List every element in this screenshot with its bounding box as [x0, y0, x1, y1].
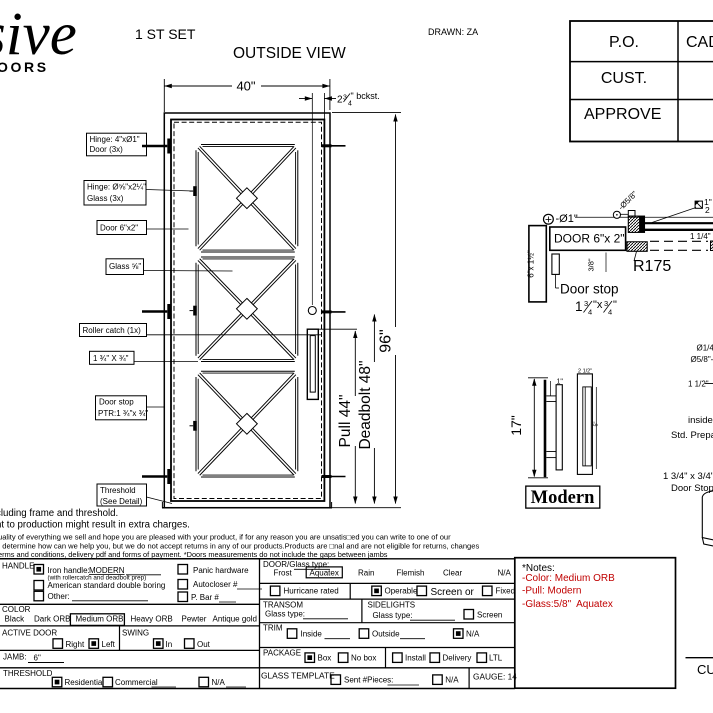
- svg-text:6"x 1½": 6"x 1½": [527, 250, 536, 278]
- svg-text:Hurricane rated: Hurricane rated: [284, 587, 339, 596]
- svg-text:CUST.: CUST.: [601, 70, 647, 87]
- svg-text:1: 1: [575, 299, 583, 314]
- svg-text:4: 4: [348, 101, 352, 108]
- svg-text:Inside: Inside: [301, 630, 323, 639]
- svg-text:Door stop: Door stop: [560, 282, 619, 297]
- svg-text:Screen: Screen: [477, 611, 502, 620]
- svg-text:Autocloser #: Autocloser #: [193, 580, 238, 589]
- svg-text:Operable: Operable: [385, 587, 418, 596]
- svg-text:-Glass:5/8" Aquatex: -Glass:5/8" Aquatex: [522, 599, 613, 610]
- svg-text:(See Detail): (See Detail): [100, 497, 143, 506]
- svg-text:American standard double borin: American standard double boring: [48, 581, 166, 590]
- svg-text:HANDLE: HANDLE: [2, 562, 34, 571]
- svg-text:Std. Prepare: Std. Prepare: [671, 430, 713, 441]
- svg-text:Screen or: Screen or: [431, 587, 475, 598]
- svg-text:Threshold: Threshold: [100, 486, 136, 495]
- svg-text:CUST: CUST: [697, 662, 713, 677]
- svg-text:In: In: [166, 640, 173, 649]
- svg-text:N/A: N/A: [212, 678, 226, 687]
- svg-text:Left: Left: [102, 640, 116, 649]
- svg-text:PTR:1 ¾"x ¾": PTR:1 ¾"x ¾": [98, 409, 148, 418]
- svg-text:nt to production might result: nt to production might result in extra c…: [0, 519, 190, 530]
- svg-text:uality of everything we sell a: uality of everything we sell and hope yo…: [0, 533, 451, 542]
- svg-text:Pewter: Pewter: [182, 615, 207, 624]
- svg-text:SWING: SWING: [122, 628, 149, 637]
- svg-text:OORS: OORS: [0, 59, 49, 75]
- svg-text:Commercial: Commercial: [115, 678, 158, 687]
- svg-text:GAUGE: 14: GAUGE: 14: [473, 672, 517, 682]
- svg-text:"x: "x: [593, 299, 603, 311]
- svg-text:5": 5": [594, 421, 600, 426]
- svg-text:Clear: Clear: [443, 569, 462, 578]
- svg-text:Aquatex: Aquatex: [310, 569, 339, 578]
- svg-text:": ": [613, 299, 617, 311]
- svg-text:1 ST SET: 1 ST SET: [135, 26, 196, 42]
- svg-text:Box: Box: [318, 654, 332, 663]
- svg-text:Door (3x): Door (3x): [90, 145, 124, 154]
- svg-text:Glass (3x): Glass (3x): [87, 194, 124, 203]
- svg-text:DOOR 6"x 2": DOOR 6"x 2": [554, 232, 625, 246]
- svg-text:TRIM: TRIM: [263, 624, 283, 633]
- svg-text:THRESHOLD: THRESHOLD: [3, 669, 53, 678]
- svg-text:JAMB:: JAMB:: [3, 653, 27, 662]
- svg-text:sive: sive: [0, 1, 77, 68]
- svg-text:Medium ORB: Medium ORB: [76, 615, 124, 624]
- svg-text:6": 6": [34, 654, 41, 663]
- svg-text:Delivery: Delivery: [443, 654, 472, 663]
- svg-text:4: 4: [608, 308, 612, 317]
- svg-text:Door 6"x2": Door 6"x2": [100, 224, 138, 233]
- svg-text:PACKAGE: PACKAGE: [263, 649, 301, 658]
- svg-text:terms and conditions, delivery: terms and conditions, delivery pdf and f…: [0, 550, 388, 559]
- svg-text:N/A: N/A: [498, 569, 512, 578]
- svg-text:P. Bar #: P. Bar #: [191, 593, 219, 602]
- svg-text:96": 96": [377, 329, 394, 352]
- svg-text:1 1/4": 1 1/4": [690, 232, 711, 241]
- svg-text:-Ø5/8": -Ø5/8": [617, 189, 640, 212]
- svg-text:17": 17": [508, 415, 524, 436]
- svg-text:GLASS TEMPLATE: GLASS TEMPLATE: [261, 671, 335, 681]
- svg-text:Deadbolt 48": Deadbolt 48": [357, 360, 374, 449]
- svg-text:Panic hardware: Panic hardware: [193, 566, 249, 575]
- svg-text:R175: R175: [633, 258, 671, 275]
- svg-text:Glass type:: Glass type:: [265, 610, 305, 619]
- svg-text:3/8": 3/8": [587, 258, 596, 271]
- svg-text:Right: Right: [66, 640, 85, 649]
- svg-text:N/A: N/A: [466, 630, 480, 639]
- svg-text:Antique gold: Antique gold: [213, 615, 257, 624]
- svg-text:-Color: Medium ORB: -Color: Medium ORB: [522, 573, 615, 584]
- svg-text:cluding frame and threshold.: cluding frame and threshold.: [0, 508, 118, 519]
- svg-text:Install: Install: [405, 654, 426, 663]
- svg-text:Black: Black: [5, 615, 26, 624]
- svg-text:No box: No box: [351, 654, 376, 663]
- svg-text:Hinge: Ø⅝"x2¼": Hinge: Ø⅝"x2¼": [87, 183, 146, 192]
- svg-text:Heavy ORB: Heavy ORB: [131, 615, 173, 624]
- svg-text:P.O.: P.O.: [609, 34, 639, 51]
- svg-text:ACTIVE DOOR: ACTIVE DOOR: [2, 628, 57, 637]
- svg-text:Hinge: 4"xØ1": Hinge: 4"xØ1": [90, 135, 140, 144]
- svg-text:CAD: CAD: [686, 34, 713, 51]
- svg-text:1": 1": [557, 379, 564, 386]
- svg-text:DRAWN: ZA: DRAWN: ZA: [428, 27, 478, 37]
- svg-text:Roller catch (1x): Roller catch (1x): [83, 326, 142, 335]
- svg-text:2: 2: [705, 205, 710, 215]
- svg-text:Other:: Other:: [48, 592, 70, 601]
- svg-text:-Ø1": -Ø1": [556, 213, 578, 225]
- svg-text:N/A: N/A: [445, 676, 459, 685]
- svg-text:Ø1/4": Ø1/4": [697, 344, 713, 353]
- svg-text:Residential: Residential: [65, 678, 105, 687]
- svg-text:Frost: Frost: [274, 569, 293, 578]
- svg-text:APPROVE: APPROVE: [584, 106, 661, 123]
- svg-text:COLOR: COLOR: [2, 605, 31, 614]
- svg-text:2 1/2": 2 1/2": [578, 369, 592, 375]
- svg-text:40": 40": [236, 79, 255, 94]
- svg-text:SIDELIGHTS: SIDELIGHTS: [368, 601, 416, 610]
- svg-text:LTL: LTL: [489, 654, 503, 663]
- svg-text:Glass type:: Glass type:: [373, 611, 413, 620]
- svg-text:1 1/2": 1 1/2": [688, 380, 709, 389]
- svg-text:Door stop: Door stop: [99, 398, 134, 407]
- svg-text:Sent #Pieces:: Sent #Pieces:: [344, 676, 393, 685]
- svg-text:Flemish: Flemish: [397, 569, 425, 578]
- svg-text:Dark ORB: Dark ORB: [34, 615, 70, 624]
- svg-text:Modern: Modern: [531, 488, 595, 508]
- svg-text:Out: Out: [197, 640, 211, 649]
- svg-text:4: 4: [588, 308, 592, 317]
- svg-text:Ø5/8"-: Ø5/8"-: [691, 355, 713, 364]
- svg-text:OUTSIDE VIEW: OUTSIDE VIEW: [233, 45, 346, 62]
- svg-text:Glass ⅝": Glass ⅝": [109, 262, 141, 271]
- svg-text:-Pull: Modern: -Pull: Modern: [522, 586, 581, 597]
- svg-text:TRANSOM: TRANSOM: [263, 601, 303, 610]
- svg-text:Fixed: Fixed: [496, 587, 516, 596]
- svg-text:Rain: Rain: [358, 569, 374, 578]
- svg-text:Pull 44": Pull 44": [337, 395, 354, 448]
- svg-text:Outside: Outside: [372, 630, 400, 639]
- svg-text:" bckst.: " bckst.: [351, 91, 380, 101]
- svg-text:1 3/4" x 3/4" -: 1 3/4" x 3/4" -: [663, 471, 713, 482]
- svg-text:inside: inside: [688, 415, 713, 426]
- svg-text:1 ¾" X ¾": 1 ¾" X ¾": [93, 354, 129, 363]
